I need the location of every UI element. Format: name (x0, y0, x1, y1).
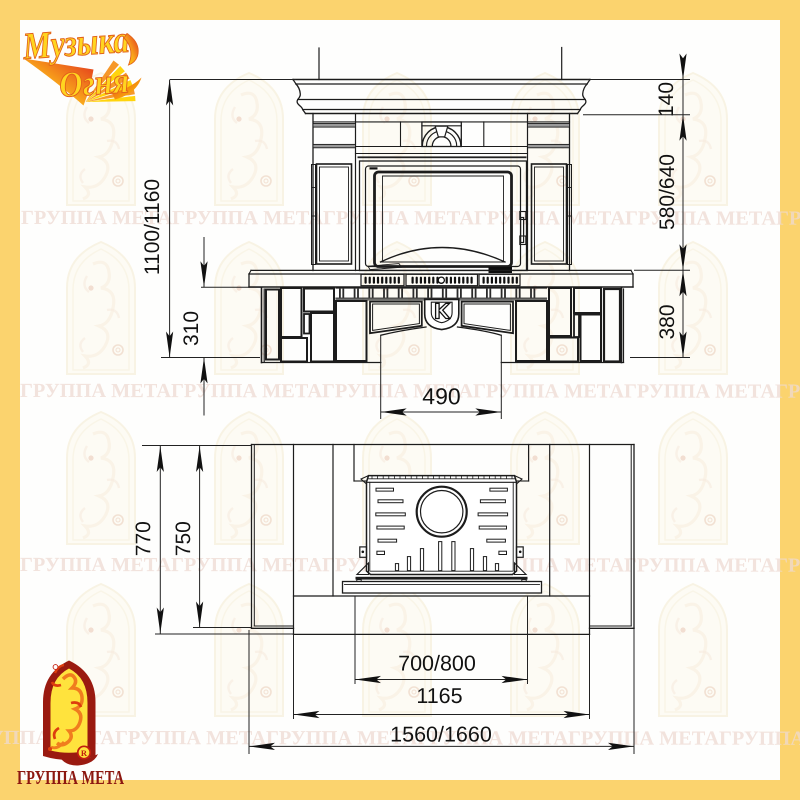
svg-text:770: 770 (132, 521, 155, 556)
svg-text:ГРУППА МЕТА: ГРУППА МЕТА (17, 767, 124, 789)
svg-text:1100/1160: 1100/1160 (141, 179, 164, 275)
svg-text:1165: 1165 (416, 684, 462, 708)
svg-text:490: 490 (422, 383, 460, 409)
svg-text:ГРУППА МЕТАГРУППА МЕТАГРУППА М: ГРУППА МЕТАГРУППА МЕТАГРУППА МЕТАГРУППА … (20, 380, 800, 403)
svg-text:R: R (81, 748, 88, 758)
svg-text:750: 750 (172, 521, 195, 556)
svg-text:700/800: 700/800 (398, 651, 476, 675)
svg-text:Огня: Огня (58, 60, 131, 105)
svg-text:580/640: 580/640 (656, 154, 679, 230)
svg-text:140: 140 (655, 82, 678, 117)
svg-text:310: 310 (180, 311, 203, 346)
svg-text:1560/1660: 1560/1660 (390, 722, 492, 746)
svg-text:380: 380 (656, 304, 679, 339)
